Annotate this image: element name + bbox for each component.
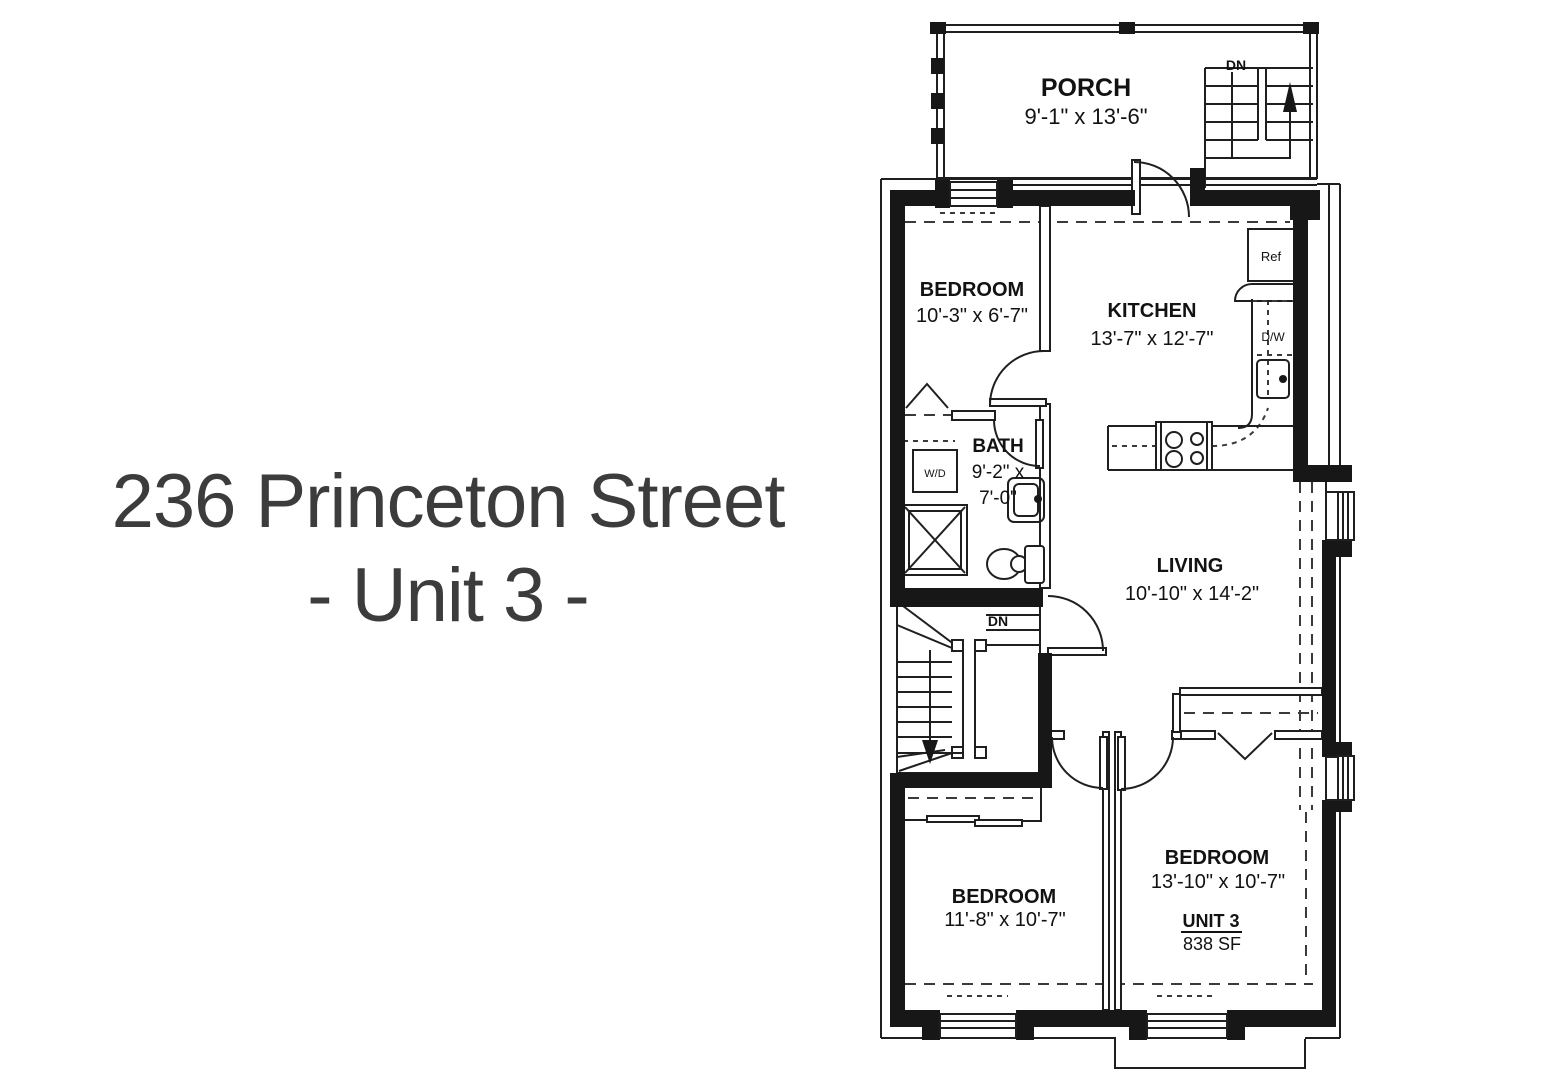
- bedroom-right-window: [1147, 1014, 1227, 1038]
- dishwasher-label: D/W: [1261, 330, 1285, 344]
- room-dims-bedroom-right: 13'-10" x 10'-7": [1151, 871, 1285, 893]
- bedroom-right-door-swing: [1121, 737, 1173, 789]
- bedroom-left-window: [940, 1014, 1016, 1038]
- closet-door-chevron-icon: [1218, 733, 1272, 759]
- room-dims-living: 10'-10" x 14'-2": [1125, 583, 1259, 605]
- closet-side-wall: [1173, 694, 1180, 732]
- closet-front-wall: [1275, 731, 1322, 739]
- dishwasher: [1252, 301, 1295, 355]
- stairs-down-label-porch: DN: [1226, 57, 1246, 73]
- refrigerator-label: Ref: [1261, 249, 1282, 264]
- room-dims-kitchen: 13'-7" x 12'-7": [1090, 328, 1213, 350]
- living-bay-window: [1338, 492, 1354, 540]
- porch-post: [1303, 22, 1319, 34]
- room-label-kitchen: KITCHEN: [1108, 300, 1197, 322]
- unit-label: UNIT 3: [1182, 911, 1239, 931]
- porch-post: [930, 22, 946, 34]
- porch-post: [931, 58, 944, 74]
- window-jamb: [1016, 1010, 1034, 1040]
- room-label-bedroom-top: BEDROOM: [920, 279, 1024, 301]
- room-label-living: LIVING: [1157, 555, 1224, 577]
- closet-back-wall: [1180, 688, 1322, 695]
- counter-edge: [1238, 299, 1252, 428]
- floor-plan-page: 236 Princeton Street - Unit 3 -: [0, 0, 1542, 1080]
- room-label-bedroom-right: BEDROOM: [1165, 847, 1269, 869]
- bedroom-top-door-swing: [990, 351, 1044, 405]
- bedroom-left-door-leaf: [1100, 737, 1107, 789]
- window-jamb: [1227, 1010, 1245, 1040]
- living-door-leaf: [1048, 648, 1106, 655]
- stairs-down-label-interior: DN: [988, 613, 1008, 629]
- room-dims-bedroom-left: 11'-8" x 10'-7": [944, 909, 1066, 931]
- room-label-porch: PORCH: [1041, 74, 1131, 102]
- room-dims-porch: 9'-1" x 13'-6": [1024, 104, 1147, 129]
- living-door-swing: [1048, 596, 1103, 651]
- room-dims-bath-2: 7'-0": [979, 488, 1017, 509]
- room-label-bedroom-left: BEDROOM: [952, 886, 1056, 908]
- bedroom-bay-window: [1338, 756, 1354, 800]
- unit-area: 838 SF: [1183, 934, 1241, 954]
- window-jamb: [997, 180, 1013, 208]
- stair-walkline: [1232, 72, 1290, 158]
- room-dims-bedroom-top: 10'-3" x 6'-7": [916, 305, 1028, 327]
- porch-stairs: [1205, 68, 1313, 188]
- bedroom-left-door-swing: [1052, 737, 1103, 788]
- stove: [1156, 422, 1212, 470]
- window-jamb: [1129, 1010, 1147, 1040]
- window-jamb: [935, 180, 950, 208]
- entry-door-swing: [1134, 162, 1189, 217]
- room-label-bath: BATH: [972, 436, 1023, 457]
- wall-bedroom-kitchen: [1040, 206, 1050, 351]
- window-jamb: [922, 1010, 940, 1040]
- washer-dryer-label: W/D: [924, 468, 945, 480]
- interior-stairs: [897, 600, 1040, 773]
- faucet-icon: [1279, 375, 1287, 383]
- bedroom-top-door-leaf: [990, 399, 1046, 406]
- closet-front-wall: [1181, 731, 1215, 739]
- closet-left-bedroom: [905, 788, 1042, 826]
- toilet-tank: [1025, 546, 1044, 583]
- closet-bypass-door: [927, 816, 979, 822]
- porch-post: [931, 93, 944, 109]
- wall-bath-top: [952, 411, 995, 420]
- kitchen-corner-shelf: [1235, 284, 1295, 301]
- closet-door-chevron-icon: [906, 384, 948, 408]
- faucet-icon: [1034, 495, 1042, 503]
- floor-plan-svg: PORCH 9'-1" x 13'-6" BEDROOM 10'-3" x 6'…: [0, 0, 1542, 1080]
- room-dims-bath-1: 9'-2" x: [972, 462, 1025, 483]
- porch-post: [1119, 22, 1135, 34]
- porch-post: [931, 128, 944, 144]
- bedroom-right-door-leaf: [1118, 737, 1125, 790]
- bedroom-top-window: [950, 182, 997, 206]
- bath-door-leaf: [1036, 420, 1043, 468]
- closet-bypass-door: [975, 820, 1022, 826]
